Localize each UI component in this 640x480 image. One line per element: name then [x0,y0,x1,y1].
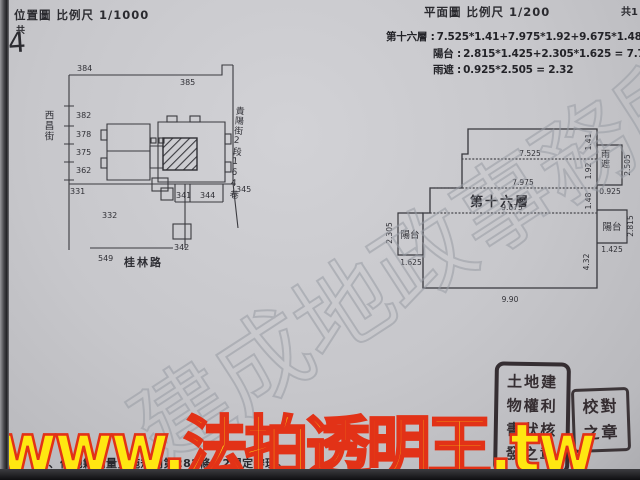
lot-331: 331 [70,187,85,196]
dim-height-2: 1.92 [584,162,593,179]
floor-plan-title: 平面圖 比例尺 1/200 [424,4,550,20]
sheet-number: 4 [7,25,27,59]
raincover-label: 雨遮 [599,149,610,169]
dim-balcony-left-height: 2.305 [385,222,394,244]
lot-385: 385 [180,78,195,87]
dim-raincover-width: 0.925 [599,187,621,196]
map-street-lines [64,65,238,250]
dim-width-bottom: 9.90 [502,295,519,304]
calc-rain-label: 雨遮 : [433,64,461,76]
calc-balcony-expr: 2.815*1.425+2.305*1.625 = 7.76 [463,48,640,60]
calc-line-floor: 第十六層 :7.525*1.41+7.975*1.92+9.675*1.48+9… [386,29,640,44]
floor-plan-drawing: 7.525 7.975 9.675 9.90 第十六層 1.41 1.92 1.… [380,125,638,310]
lot-549: 549 [98,254,113,263]
lot-375: 375 [76,148,91,157]
lot-332: 332 [102,211,117,220]
dim-width-top: 7.525 [519,149,541,158]
scan-edge-bottom [0,469,640,480]
scanned-cadastral-document: 建成地政事務所 位置圖 比例尺 1/1000 共 4 平面圖 比例尺 1/200… [0,0,640,480]
location-map-title: 位置圖 比例尺 1/1000 [14,7,149,23]
dim-raincover-height: 2.505 [623,154,632,176]
lot-344: 344 [200,191,215,200]
calc-line-balcony: 陽台 :2.815*1.425+2.305*1.625 = 7.76 [433,46,640,61]
balcony-left-label: 陽台 [400,229,419,241]
plan-sheet-note: 共1 [621,3,638,18]
dim-height-1: 1.41 [584,133,593,150]
dim-height-3: 1.48 [584,192,593,209]
calc-line-raincover: 雨遮 :0.925*2.505 = 2.32 [433,62,573,77]
dim-balcony-left-width: 1.625 [400,258,422,267]
dim-balcony-right-height: 2.815 [626,215,635,237]
balcony-right-label: 陽台 [602,221,621,233]
calc-rain-expr: 0.925*2.505 = 2.32 [463,64,573,76]
dim-height-4: 4.32 [582,253,591,270]
street-name-bottom: 桂林路 [123,255,163,269]
calc-balcony-label: 陽台 : [433,48,461,60]
calc-floor-label: 第十六層 : [386,31,435,43]
calc-floor-expr: 7.525*1.41+7.975*1.92+9.675*1.48+9.90*4.… [437,31,640,43]
lot-382: 382 [76,111,91,120]
site-watermark-banner: www.法拍透明王.tw [0,394,594,480]
dim-width-mid: 7.975 [512,178,534,187]
lot-378: 378 [76,130,91,139]
lot-341: 341 [176,191,191,200]
location-map-drawing: 384 385 382 378 375 362 331 332 341 344 … [40,58,255,273]
plan-unit-label: 第十六層 [470,194,530,210]
subject-unit-hatched [163,138,197,170]
dim-balcony-right-width: 1.425 [601,245,623,254]
scan-edge-left [0,0,9,480]
street-name-left: 西昌街 [43,110,55,142]
lot-384: 384 [77,64,92,73]
lot-362: 362 [76,166,91,175]
lot-342: 342 [174,243,189,252]
